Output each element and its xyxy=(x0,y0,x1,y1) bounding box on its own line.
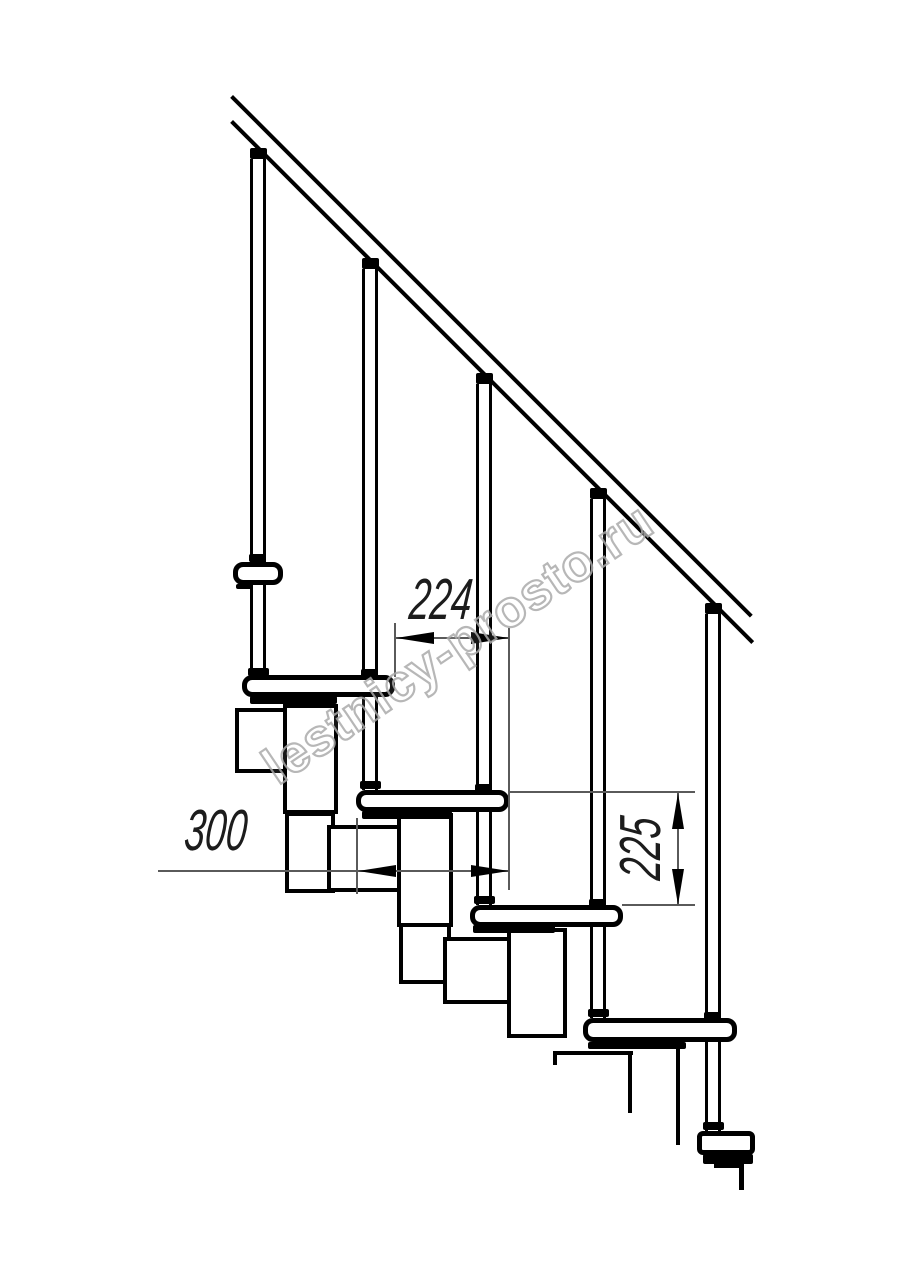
base-support xyxy=(697,1131,755,1155)
tread-bracket xyxy=(473,925,555,933)
extension-line xyxy=(622,904,695,906)
dimension-arrow-down-icon xyxy=(672,869,684,905)
dimension-arrow-left-icon xyxy=(358,865,396,877)
module-edge-line xyxy=(739,1164,744,1190)
dimension-arrow-right-icon xyxy=(471,865,509,877)
tread-top-partial xyxy=(233,562,283,585)
module-edge-line xyxy=(553,1051,633,1055)
baluster-rod xyxy=(250,159,266,677)
tread-bracket xyxy=(236,584,252,589)
module-box xyxy=(507,928,567,1038)
extension-line xyxy=(509,791,695,793)
baluster-collar-icon xyxy=(703,1122,724,1130)
dimension-line xyxy=(158,870,510,872)
extension-line xyxy=(508,628,510,890)
baluster-rod xyxy=(705,614,721,1131)
baluster-collar-icon xyxy=(360,781,381,789)
baluster-collar-icon xyxy=(474,896,495,904)
extension-line xyxy=(356,818,358,894)
baluster-clamp-icon xyxy=(249,554,266,562)
dimension-rise-label: 225 xyxy=(612,814,670,882)
dimension-arrow-up-icon xyxy=(672,793,684,829)
tread-bracket xyxy=(588,1042,686,1049)
module-edge-line xyxy=(628,1051,632,1113)
tread-bracket xyxy=(362,811,452,819)
dimension-tread-length-label: 300 xyxy=(182,802,250,860)
handrail-bottom-line xyxy=(230,120,754,644)
tread xyxy=(356,790,509,812)
staircase-technical-drawing: 224 300 225 lestnicy-prosto.ru xyxy=(0,0,914,1280)
tread-bracket xyxy=(703,1154,753,1164)
baluster-collar-icon xyxy=(588,1009,609,1017)
tread xyxy=(583,1018,737,1042)
module-box xyxy=(327,825,403,892)
tread xyxy=(470,905,623,927)
module-edge-line xyxy=(676,1047,680,1145)
module-edge-line xyxy=(553,1051,557,1065)
